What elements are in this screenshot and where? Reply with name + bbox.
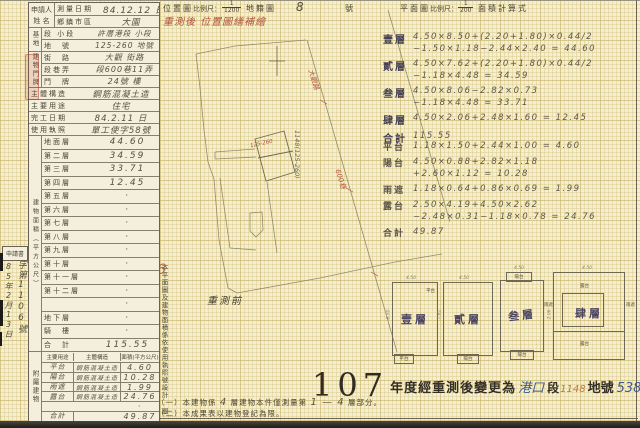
calc-line-2: +2.60×1.12 = 10.28 <box>413 168 539 180</box>
attached-row: 露台 鋼筋混凝土造 24.76 <box>42 392 159 402</box>
structure-row-value: 住宅 <box>83 100 159 112</box>
floor-row-value: · <box>96 299 159 309</box>
structure-row-value: 單工使字58號 <box>83 124 159 136</box>
floor-row-value: · <box>96 191 159 201</box>
attached-row-area: 4.60 <box>121 363 159 372</box>
calc-line-2: −2.48×0.31−1.18×0.78 = 24.76 <box>413 211 596 223</box>
address-row: 門 牌 24號 樓 <box>42 76 159 88</box>
calc-line-1: 1.18×0.64+0.86×0.69 = 1.99 <box>413 184 581 194</box>
ext-label: 陽台 <box>464 356 473 362</box>
attached-row-area: 10.28 <box>121 373 159 382</box>
structure-row: 使用執照 單工使字58號 <box>29 124 159 136</box>
address-row: 街 路 大觀 街路 <box>42 52 159 64</box>
floor-plan-4-side-label: 雨遮 <box>626 302 635 308</box>
floor-row-label: 第十二層 <box>42 286 96 296</box>
scan-bottom-edge <box>0 421 640 428</box>
floor-row-label: 第三層 <box>42 164 96 174</box>
district-row: 鄉鎮市區 大園 <box>55 16 159 28</box>
calc-floor-label: 貳層 <box>383 58 413 82</box>
survey-date-row: 測量日期 84.12.12 日 <box>55 3 159 16</box>
map-road-label-2: 600巷 <box>332 168 348 190</box>
floor-row-label: 合 計 <box>42 340 96 350</box>
calc-floor-row: 壹層 4.50×8.50+(2.20+1.80)×0.44/2−1.50×1.1… <box>383 31 635 55</box>
applicant-cell: 申請人 姓 名 <box>29 3 55 28</box>
floor-row-value: · <box>96 245 159 255</box>
floor-row-label: 第二層 <box>42 151 96 161</box>
attached-header-structure: 主體構造 <box>74 353 121 361</box>
floor-row: 地下層 · <box>42 312 159 326</box>
floor-row-label: 騎 樓 <box>42 326 96 336</box>
floor-rows: 地面層 44.60 第二層 34.59 第三層 33.71 第四層 12.45 … <box>42 136 159 352</box>
calc-floor-row: 貳層 4.50×7.62+(2.20+1.80)×0.44/2−1.18×4.4… <box>383 58 635 82</box>
floor-row-value: · <box>96 232 159 242</box>
header-sheet-number: 8 <box>296 0 305 14</box>
floor-row: 第二層 34.59 <box>42 150 159 164</box>
floor-row-value: 12.45 <box>96 178 159 188</box>
floor-row-value: · <box>96 218 159 228</box>
ext-label: 陽台 <box>518 352 527 358</box>
floor-plan-2-width-dim: 4.50 <box>459 276 469 281</box>
floor-plan-1: 壹層 平台 <box>392 282 438 356</box>
header-scale-label-2: 比例尺： <box>430 4 458 14</box>
map-parcel-note: 1148(125-260) <box>293 130 301 215</box>
floor-row-label: 第十層 <box>42 259 96 269</box>
map-building-parcel-label: 125-260 <box>250 139 274 150</box>
stamp-parcel-number: 1148 <box>560 384 585 395</box>
floor-plan-4-divider <box>554 331 624 332</box>
stamp-year: 107 <box>312 370 388 400</box>
floor-row-value: · <box>96 326 159 336</box>
sheet-right-border <box>636 0 637 421</box>
structure-row: 主體構造 鋼筋混凝土造 <box>29 88 159 100</box>
survey-date-label: 測量日期 <box>55 4 103 14</box>
floor-row: · <box>42 298 159 312</box>
structure-rows: 主體構造 鋼筋混凝土造 主要用途 住宅 完工日期 84.2.11 日 使用執照 … <box>29 88 159 136</box>
floor-row: 第十一層 · <box>42 271 159 285</box>
site-rows: 段 小段 許厝港段 小段 地 號 125-260 地號 <box>42 28 159 52</box>
floor-plan-2: 貳層 <box>443 282 493 356</box>
site-row: 地 號 125-260 地號 <box>42 40 159 52</box>
floor-row: 第三層 33.71 <box>42 163 159 177</box>
calc-floor-label: 壹層 <box>383 31 413 55</box>
structure-row-label: 完工日期 <box>29 113 83 123</box>
calc-line-2: −1.50×1.18−2.44×2.40 = 44.60 <box>413 43 596 55</box>
address-row-value: 大觀 街路 <box>90 52 159 63</box>
info-table: 申請人 姓 名 測量日期 84.12.12 日 鄉鎮市區 大園 基地 段 小段 … <box>28 2 160 423</box>
calc-line-1: 4.50×8.50+(2.20+1.80)×0.44/2 <box>413 32 593 42</box>
calc-line-1: 49.87 <box>413 227 445 237</box>
resurvey-stamp-line: 107 年度經重測後變更為 港口 段 1148 地號 538 建號 <box>312 364 638 400</box>
floor-area-calculations: 壹層 4.50×8.50+(2.20+1.80)×0.44/2−1.50×1.1… <box>383 31 635 148</box>
header-sheet-unit: 號 <box>345 3 353 14</box>
floor-plan-2-bottom-ext: 陽台 <box>457 354 479 364</box>
calc-line-1: 4.50×2.06+2.48×1.60 = 12.45 <box>413 113 587 123</box>
applicant-label: 申請人 <box>29 5 54 16</box>
attached-header-row: 主要用途 主體構造 面積(平方公尺) <box>42 352 159 363</box>
footnote-rule <box>155 418 638 419</box>
attached-row-use: 雨遮 <box>42 383 74 392</box>
footnote-1-range: 1 — 4 <box>311 397 345 408</box>
red-resurvey-note: 重測後 位置圖繕補繪 <box>163 13 266 28</box>
floor-row: 第六層 · <box>42 204 159 218</box>
floor-plan-1-height-dim: 8.50 <box>387 309 392 319</box>
floor-plan-3-side-label: 雨遮 <box>544 302 553 308</box>
attached-row-area: 1.99 <box>121 383 159 392</box>
structure-row: 完工日期 84.2.11 日 <box>29 112 159 124</box>
attached-rows: 平台 鋼筋混凝土造 4.60 陽台 鋼筋混凝土造 10.28 雨遮 鋼筋混凝土造… <box>42 363 159 422</box>
attached-area-calculations: 平台 1.18×1.50+2.44×1.00 = 4.60 陽台 4.50×0.… <box>383 140 635 242</box>
attached-row-structure: 鋼筋混凝土造 <box>74 392 121 401</box>
attached-group-label: 附屬建物 <box>29 352 42 422</box>
calc-attached-row: 平台 1.18×1.50+2.44×1.00 = 4.60 <box>383 140 635 153</box>
map-road-label-1: 大觀路 <box>305 68 321 91</box>
calc-line-2: −1.18×4.48 = 34.59 <box>413 70 593 82</box>
floor-row-label: 第八層 <box>42 232 96 242</box>
header-plan-scale-fraction: 1 200 <box>458 1 473 14</box>
calc-attached-row: 合計 49.87 <box>383 226 635 239</box>
calc-attached-label: 平台 <box>383 140 413 153</box>
floor-row: 第十層 · <box>42 258 159 272</box>
floor-row-label: 地面層 <box>42 137 96 147</box>
floor-plan-1-width-dim: 4.50 <box>406 276 416 281</box>
floor-row: 騎 樓 · <box>42 325 159 339</box>
floor-row-value: · <box>96 272 159 282</box>
district-value: 大園 <box>103 16 159 28</box>
attached-row: 雨遮 鋼筋混凝土造 1.99 <box>42 383 159 393</box>
address-row: 段巷弄 段600巷11弄 <box>42 64 159 76</box>
calc-floor-row: 肆層 4.50×2.06+2.48×1.60 = 12.45 <box>383 112 635 127</box>
calc-line-2: −1.18×4.48 = 33.71 <box>413 97 539 109</box>
stamp-dihao: 地號 <box>588 377 614 396</box>
floor-row-value: · <box>96 259 159 269</box>
scan-top-edge <box>0 0 640 1</box>
site-row-label: 地 號 <box>42 41 90 51</box>
structure-row: 主要用途 住宅 <box>29 100 159 112</box>
calc-line-1: 1.18×1.50+2.44×1.00 = 4.60 <box>413 141 581 151</box>
floor-row: 第十二層 · <box>42 285 159 299</box>
attached-row-area: · <box>121 402 159 411</box>
site-row-value: 125-260 地號 <box>90 40 159 51</box>
scanned-survey-form: { "header": { "location_map": "位置圖", "sc… <box>0 0 640 428</box>
calc-attached-row: 露台 2.50×4.19+4.50×2.62−2.48×0.31−1.18×0.… <box>383 199 635 223</box>
calc-line-1: 4.50×7.62+(2.20+1.80)×0.44/2 <box>413 59 593 69</box>
floor-area-group-label: 建物面積（平方公尺） <box>29 136 42 352</box>
floor-plan-4-top-label: 露台 <box>580 283 589 289</box>
attached-row-structure: 鋼筋混凝土造 <box>74 373 121 382</box>
address-row-label: 段巷弄 <box>42 65 90 75</box>
floor-plan-3-width-dim: 4.50 <box>514 266 524 271</box>
floor-plan-3-bottom-ext: 陽台 <box>510 350 534 360</box>
floor-row-label: 第四層 <box>42 178 96 188</box>
floor-row-value: 44.60 <box>96 137 159 147</box>
site-row-label: 段 小段 <box>42 29 90 39</box>
floor-plan-2-name: 貳層 <box>444 311 492 327</box>
attached-row-structure: 鋼筋混凝土造 <box>74 363 121 372</box>
calc-line-1: 2.50×4.19+4.50×2.62 <box>413 200 539 210</box>
floor-row-value: 34.59 <box>96 151 159 161</box>
receipt-box: 申請書 <box>2 246 28 261</box>
calc-floor-label: 叁層 <box>383 85 413 109</box>
stamp-text-1: 年度經重測後變更為 <box>390 377 516 396</box>
floor-plan-1-name: 壹層 <box>393 311 437 327</box>
floor-row-value: 115.55 <box>96 340 159 350</box>
floor-row-label: 地下層 <box>42 313 96 323</box>
floor-plan-4-name: 肆層 <box>554 305 624 321</box>
stamp-section-name: 港口 <box>518 377 544 396</box>
floor-plan-4-width-dim: 4.50 <box>582 266 592 271</box>
floor-row-value: · <box>96 313 159 323</box>
header-floor-plan-label: 平面圖 <box>400 3 430 14</box>
stamp-building-number: 538 <box>617 381 640 396</box>
floor-plan-3: 叁層 <box>500 280 544 352</box>
floor-plan-4-bottom-label: 露台 <box>580 341 589 347</box>
floor-row-label: 第十一層 <box>42 272 96 282</box>
ext-label: 平台 <box>400 356 409 362</box>
floor-row-label: 第六層 <box>42 205 96 215</box>
applicant-name-label: 姓 名 <box>29 16 54 27</box>
survey-date-value: 84.12.12 日 <box>103 3 159 16</box>
structure-row-value: 84.2.11 日 <box>83 112 159 124</box>
floor-row: 第四層 12.45 <box>42 177 159 191</box>
calc-line-1: 4.50×8.06−2.82×0.73 <box>413 86 539 96</box>
floor-row-value: · <box>96 205 159 215</box>
red-seal <box>25 54 39 100</box>
receipt-number: 字第1106號 <box>15 260 28 358</box>
attached-header-use: 主要用途 <box>42 353 74 361</box>
structure-row-label: 主要用途 <box>29 101 83 111</box>
floor-row: 第五層 · <box>42 190 159 204</box>
address-rows: 街 路 大觀 街路 段巷弄 段600巷11弄 門 牌 24號 樓 <box>42 52 159 88</box>
stamp-duan: 段 <box>547 379 559 396</box>
floor-row: 第九層 · <box>42 244 159 258</box>
footnote-line-1: （一）本建物係 4 層建物本件僅測量第 1 — 4 層部分。 <box>157 397 382 408</box>
floor-row: 第八層 · <box>42 231 159 245</box>
calc-floor-label: 肆層 <box>383 112 413 127</box>
floor-row-label: 第五層 <box>42 191 96 201</box>
calc-attached-row: 雨遮 1.18×0.64+0.86×0.69 = 1.99 <box>383 183 635 196</box>
footnote-1-floor-count: 4 <box>220 397 227 408</box>
attached-row-structure: 鋼筋混凝土造 <box>74 383 121 392</box>
map-pre-survey-label: 重測前 <box>207 292 243 307</box>
structure-row-label: 使用執照 <box>29 125 83 135</box>
header-area-formula-label: 面積計算式 <box>478 3 528 14</box>
scan-edge-mark-3 <box>0 332 2 346</box>
footnote-1-prefix: （一）本建物係 <box>157 398 217 407</box>
district-label: 鄉鎮市區 <box>55 17 103 27</box>
attached-row-area: 24.76 <box>121 392 159 401</box>
attached-row-use: 合計 <box>42 412 74 421</box>
attached-row-use: 陽台 <box>42 373 74 382</box>
attached-row-use: 平台 <box>42 363 74 372</box>
calc-attached-label: 陽台 <box>383 156 413 180</box>
attached-header-area: 面積(平方公尺) <box>121 353 159 361</box>
scan-edge-mark-1 <box>0 253 3 271</box>
address-row-label: 街 路 <box>42 53 90 63</box>
floor-plan-2-height-dim: 7.62 <box>438 309 443 319</box>
site-row: 段 小段 許厝港段 小段 <box>42 28 159 40</box>
floor-plan-4: 露台 肆層 露台 <box>553 272 625 360</box>
address-row-value: 24號 樓 <box>90 76 159 87</box>
calc-line-1: 4.50×0.88+2.82×1.18 <box>413 157 539 167</box>
floor-row-label: 第九層 <box>42 245 96 255</box>
floor-row-label: 第七層 <box>42 218 96 228</box>
attached-row-use: 露台 <box>42 392 74 401</box>
floor-row: 合 計 115.55 <box>42 339 159 353</box>
plan-scale-denominator: 200 <box>458 7 473 14</box>
attached-row: · <box>42 402 159 412</box>
receipt-date: 85年2月13日 <box>3 262 14 354</box>
attached-row-area: 49.87 <box>121 412 159 421</box>
vertical-note-line-1: 本平面圖及建物面積係依使用執照號設計 <box>160 264 168 399</box>
north-mark <box>269 46 285 76</box>
floor-row: 第七層 · <box>42 217 159 231</box>
floor-plan-1-top-label: 平台 <box>426 288 435 294</box>
address-row-label: 門 牌 <box>42 77 90 87</box>
attached-row: 陽台 鋼筋混凝土造 10.28 <box>42 373 159 383</box>
footnote-1-mid: 層建物本件僅測量第 <box>231 398 308 407</box>
address-row-value: 段600巷11弄 <box>90 64 159 75</box>
calc-floor-row: 叁層 4.50×8.06−2.82×0.73−1.18×4.48 = 33.71 <box>383 85 635 109</box>
floor-row: 地面層 44.60 <box>42 136 159 150</box>
floor-plan-3-name: 叁層 <box>500 305 544 326</box>
calc-attached-label: 露台 <box>383 199 413 223</box>
calc-attached-label: 雨遮 <box>383 183 413 196</box>
calc-attached-row: 陽台 4.50×0.88+2.82×1.18+2.60×1.12 = 10.28 <box>383 156 635 180</box>
footnote-1-suffix: 層部分。 <box>348 398 382 407</box>
floor-plan-1-bottom-ext: 平台 <box>394 354 414 364</box>
site-group-label: 基地 <box>29 28 42 52</box>
site-row-value: 許厝港段 小段 <box>90 28 159 39</box>
floor-plan-4-height-dim: 2.06 <box>548 309 553 319</box>
calc-attached-label: 合計 <box>383 226 413 239</box>
floor-row-value: · <box>96 286 159 296</box>
attached-row: 平台 鋼筋混凝土造 4.60 <box>42 363 159 373</box>
structure-row-value: 鋼筋混凝土造 <box>83 88 159 100</box>
floor-row-value: 33.71 <box>96 164 159 174</box>
scan-edge-mark-2 <box>0 300 3 326</box>
